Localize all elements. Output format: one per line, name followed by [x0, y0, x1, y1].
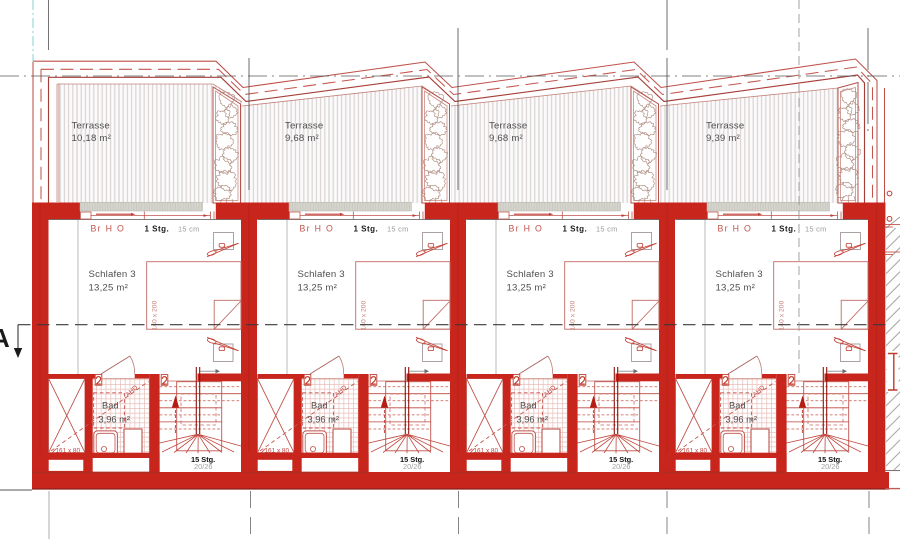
svg-text:Bad: Bad [729, 401, 746, 411]
svg-text:Terrasse: Terrasse [72, 121, 110, 132]
svg-text:1 Stg.: 1 Stg. [772, 225, 797, 234]
svg-text:Bad: Bad [520, 401, 537, 411]
svg-text:Bad: Bad [102, 401, 119, 411]
svg-text:1 Stg.: 1 Stg. [354, 225, 379, 234]
svg-text:15 cm: 15 cm [387, 225, 409, 234]
svg-text:Br H O: Br H O [300, 224, 335, 234]
svg-text:Terrasse: Terrasse [489, 121, 527, 132]
svg-text:Schlafen 3: Schlafen 3 [89, 269, 136, 280]
svg-text:13,25 m²: 13,25 m² [716, 283, 756, 294]
svg-text:140 x 200: 140 x 200 [778, 300, 785, 330]
svg-text:1 Stg.: 1 Stg. [563, 225, 588, 234]
svg-text:Terrasse: Terrasse [706, 121, 744, 132]
svg-text:140 x 200: 140 x 200 [360, 300, 367, 330]
svg-text:9,39 m²: 9,39 m² [706, 133, 741, 144]
svg-text:Br H O: Br H O [91, 224, 126, 234]
svg-text:140 x 200: 140 x 200 [151, 300, 158, 330]
svg-text:Schlafen 3: Schlafen 3 [716, 269, 763, 280]
svg-text:Schlafen 3: Schlafen 3 [298, 269, 345, 280]
svg-text:20/26: 20/26 [821, 462, 840, 471]
svg-text:3,96 m²: 3,96 m² [517, 415, 549, 425]
svg-text:3,96 m²: 3,96 m² [308, 415, 340, 425]
svg-text:Schlafen 3: Schlafen 3 [507, 269, 554, 280]
svg-text:13,25 m²: 13,25 m² [298, 283, 338, 294]
svg-text:10,18 m²: 10,18 m² [72, 133, 112, 144]
svg-text:15 cm: 15 cm [596, 225, 618, 234]
svg-text:3,96 m²: 3,96 m² [726, 415, 758, 425]
svg-text:20/26: 20/26 [612, 462, 631, 471]
svg-text:20/26: 20/26 [403, 462, 422, 471]
svg-text:3,96 m²: 3,96 m² [99, 415, 131, 425]
svg-text:1 Stg.: 1 Stg. [145, 225, 170, 234]
svg-text:15 cm: 15 cm [178, 225, 200, 234]
svg-text:Terrasse: Terrasse [285, 121, 323, 132]
svg-text:Bad: Bad [311, 401, 328, 411]
svg-text:13,25 m²: 13,25 m² [507, 283, 547, 294]
svg-text:9,68 m²: 9,68 m² [489, 133, 524, 144]
svg-text:140 x 200: 140 x 200 [569, 300, 576, 330]
svg-text:15 cm: 15 cm [805, 225, 827, 234]
svg-text:9,68 m²: 9,68 m² [285, 133, 320, 144]
svg-text:13,25 m²: 13,25 m² [89, 283, 129, 294]
svg-text:A: A [0, 323, 10, 353]
svg-text:20/26: 20/26 [194, 462, 213, 471]
svg-text:Br H O: Br H O [718, 224, 753, 234]
svg-text:Br H O: Br H O [509, 224, 544, 234]
